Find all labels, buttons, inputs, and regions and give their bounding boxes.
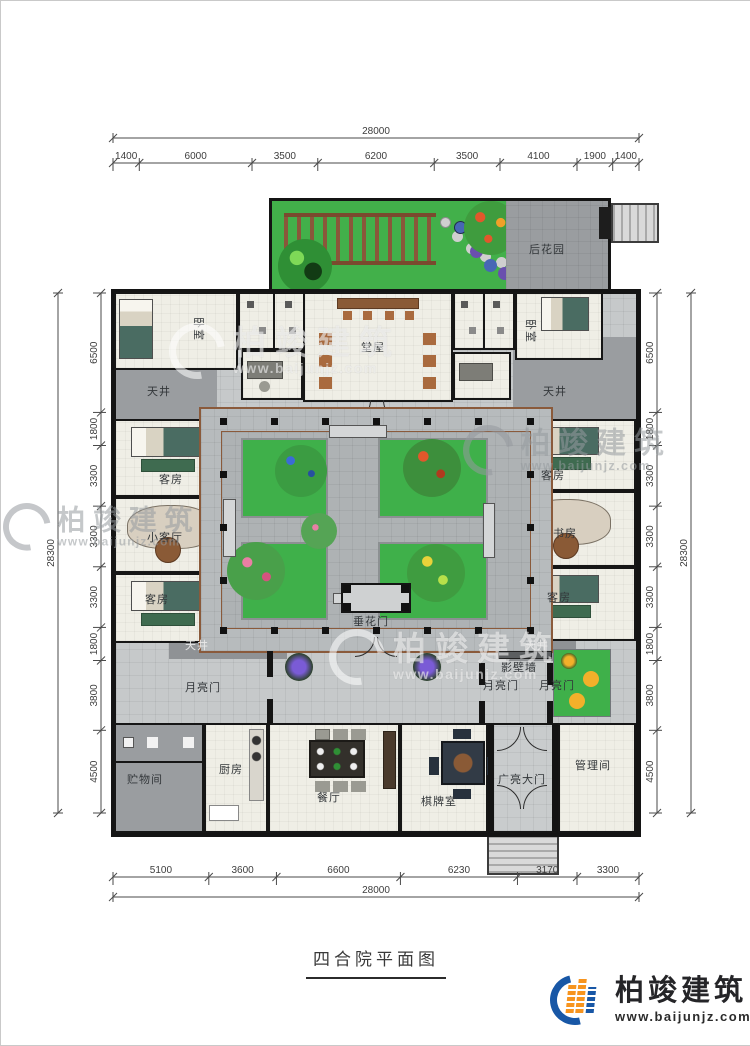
dim-label: 28300 (679, 539, 690, 567)
dim-label: 1800 (645, 417, 656, 440)
floorplan-page: 后花园 卧室 卧室 堂屋 天井 天井 天井 天井 客房 小客厅 客房 客房 书房… (0, 0, 750, 1046)
dim-label: 6200 (365, 151, 388, 162)
room-label: 管理间 (575, 757, 611, 773)
dimension-lines: 2800014006000350062003500410019001400280… (1, 1, 750, 1045)
room-label: 天井 (525, 637, 549, 653)
dim-label: 3300 (89, 525, 100, 548)
room-label: 客房 (541, 467, 565, 483)
dim-label: 1800 (645, 632, 656, 655)
dim-label: 4500 (645, 760, 656, 783)
dim-label: 3300 (89, 464, 100, 487)
dim-label: 4500 (89, 760, 100, 783)
dim-label: 28000 (362, 885, 390, 896)
room-label: 天井 (543, 383, 567, 399)
logo-mark-icon (549, 969, 607, 1031)
dim-label: 6500 (89, 341, 100, 364)
room-label: 天井 (185, 637, 209, 653)
room-label: 棋牌室 (421, 793, 457, 809)
logo-website: www.baijunjz.com (615, 1010, 750, 1024)
room-label: 月亮门 (539, 677, 575, 693)
room-label: 后花园 (529, 241, 565, 257)
room-label: 月亮门 (185, 679, 221, 695)
dim-label: 4100 (527, 151, 550, 162)
dim-label: 1400 (615, 151, 638, 162)
room-label: 垂花门 (353, 613, 389, 629)
room-label: 客房 (159, 471, 183, 487)
room-label: 客房 (547, 589, 571, 605)
dim-label: 1800 (89, 417, 100, 440)
room-label: 客房 (145, 591, 169, 607)
drawing-title: 四合院平面图 (281, 945, 471, 970)
room-label: 小客厅 (147, 529, 183, 545)
dim-label: 6600 (327, 865, 350, 876)
room-label: 广亮大门 (498, 771, 546, 787)
room-label: 天井 (147, 383, 171, 399)
dim-label: 1800 (89, 632, 100, 655)
dim-label: 6230 (448, 865, 471, 876)
dim-label: 6000 (185, 151, 208, 162)
room-label: 餐厅 (317, 789, 341, 805)
company-logo: 柏竣建筑 www.baijunjz.com (549, 961, 747, 1039)
dim-label: 3600 (231, 865, 254, 876)
dim-label: 3500 (274, 151, 297, 162)
room-label: 卧室 (191, 317, 207, 341)
dim-label: 3500 (456, 151, 479, 162)
dim-label: 1400 (115, 151, 138, 162)
dim-label: 3300 (645, 586, 656, 609)
dim-label: 6500 (645, 341, 656, 364)
room-label: 堂屋 (361, 339, 385, 355)
room-label: 书房 (553, 525, 577, 541)
room-label: 贮物间 (127, 771, 163, 787)
logo-company-name: 柏竣建筑 (615, 976, 750, 1008)
dim-label: 3170 (536, 865, 559, 876)
dim-label: 3300 (645, 464, 656, 487)
dim-label: 3800 (89, 684, 100, 707)
dim-label: 28000 (362, 126, 390, 137)
dim-label: 3800 (645, 684, 656, 707)
dim-label: 3300 (645, 525, 656, 548)
dim-label: 1900 (584, 151, 607, 162)
room-label: 卧室 (523, 319, 539, 343)
dim-label: 3300 (89, 586, 100, 609)
room-label: 影壁墙 (501, 659, 537, 675)
drawing-title-text: 四合院平面图 (313, 950, 439, 969)
dim-label: 28300 (46, 539, 57, 567)
dim-label: 5100 (150, 865, 173, 876)
dim-label: 3300 (597, 865, 620, 876)
room-label: 厨房 (219, 761, 243, 777)
logo-swoosh-icon (541, 966, 610, 1035)
room-label: 月亮门 (483, 677, 519, 693)
